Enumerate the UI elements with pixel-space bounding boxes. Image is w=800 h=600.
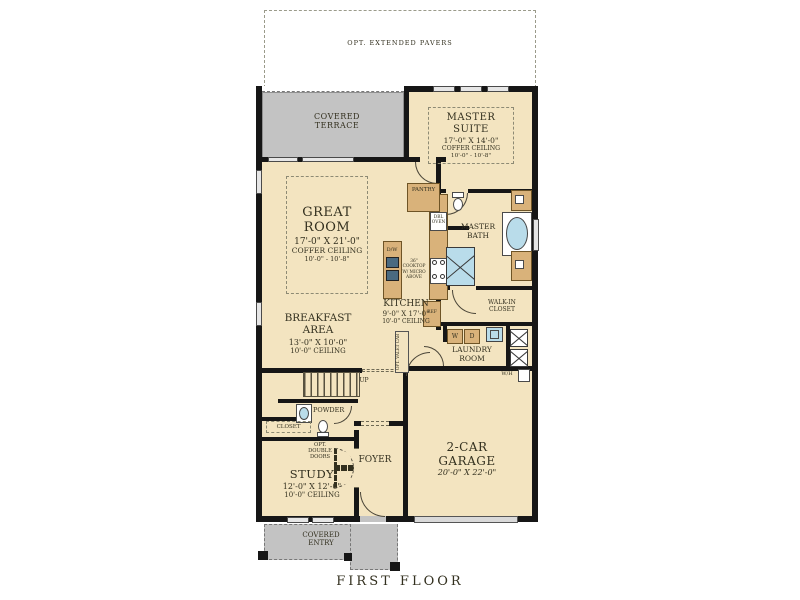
powder-label: POWDER — [313, 407, 351, 415]
window-marker — [256, 302, 262, 326]
window-marker — [433, 86, 455, 92]
window-marker — [487, 86, 509, 92]
dishwasher-label: D/W — [382, 248, 402, 254]
pantry-label: PANTRY — [407, 187, 440, 193]
closet-label: CLOSET — [266, 424, 311, 430]
foyer-label: FOYER — [352, 455, 398, 466]
master-bath-label: MASTER BATH — [455, 223, 501, 241]
water-heater-box — [518, 369, 530, 382]
laundry-sink-basin — [490, 330, 499, 339]
wall — [404, 90, 409, 162]
extended-pavers-area — [264, 10, 536, 88]
window-marker — [256, 170, 262, 194]
walk-in-closet-label: WALK-IN CLOSET — [482, 299, 522, 313]
burner-icon — [432, 274, 437, 279]
window-marker — [460, 86, 482, 92]
entry-corner-mark — [258, 551, 268, 560]
powder-sink-basin — [299, 407, 309, 420]
water-heater-label: W/H — [497, 372, 517, 378]
window-marker — [287, 517, 309, 523]
bathtub-basin — [506, 217, 528, 250]
terrace-open-edge — [262, 86, 404, 92]
master-suite-label: MASTER SUITE 17'-0" X 14'-0" COFFER CEIL… — [431, 112, 511, 160]
staircase — [303, 372, 360, 397]
pavers-label: OPT. EXTENDED PAVERS — [280, 40, 520, 48]
opt-double-door-opening — [354, 448, 359, 488]
laundry-room-label: LAUNDRY ROOM — [446, 346, 498, 364]
slider-window-marker — [302, 157, 354, 162]
covered-entry-label: COVERED ENTRY — [292, 531, 350, 548]
shower-fixture — [446, 247, 475, 286]
equipment-box — [510, 329, 528, 347]
great-room-label: GREAT ROOM 17'-0" X 21'-0" COFFER CEILIN… — [277, 205, 377, 264]
toilet-fixture — [317, 432, 329, 437]
washer-label: W — [447, 333, 463, 340]
entry-corner-mark — [344, 553, 352, 561]
breakfast-area-label: BREAKFAST AREA 13'-0" X 10'-0" 10'-0" CE… — [280, 312, 356, 355]
dryer-label: D — [464, 333, 480, 340]
slider-window-marker — [268, 157, 298, 162]
opt-double-doors-label: OPT. DOUBLE DOORS — [302, 442, 338, 460]
vanity-sink — [515, 195, 524, 204]
burner-icon — [440, 260, 445, 265]
up-label: UP — [356, 377, 372, 384]
cased-opening — [361, 421, 389, 426]
kitchen-sink-fixture — [386, 270, 399, 281]
wall — [262, 437, 358, 441]
cooktop-note: 36" COOKTOP W/ MICRO ABOVE — [400, 259, 428, 280]
window-marker — [533, 219, 539, 251]
study-label: STUDY 12'-0" X 12'-0" 10'-0" CEILING — [272, 468, 352, 499]
burner-icon — [440, 274, 445, 279]
entry-corner-mark — [390, 562, 400, 571]
toilet-fixture — [453, 198, 463, 211]
wall — [436, 322, 538, 326]
burner-icon — [432, 260, 437, 265]
vanity-sink — [515, 260, 524, 269]
kitchen-label: KITCHEN 9'-0" X 17'-0" 10'-0" CEILING — [377, 299, 435, 325]
window-marker — [312, 517, 334, 523]
opt-valet-label: OPT. VALET CAB — [395, 332, 409, 372]
kitchen-sink-fixture — [386, 257, 399, 268]
garage-label: 2-CAR GARAGE 20'-0" X 22'-0" — [417, 440, 517, 478]
wall — [403, 355, 408, 517]
wall — [278, 399, 358, 403]
double-oven-label: DBL OVEN — [429, 215, 448, 225]
plan-title: FIRST FLOOR — [330, 574, 470, 589]
floor-plan-canvas: OPT. EXTENDED PAVERS COVERED TERRACE — [0, 0, 800, 600]
garage-door — [414, 516, 518, 523]
covered-terrace-label: COVERED TERRACE — [306, 112, 368, 131]
equipment-box — [510, 349, 528, 367]
